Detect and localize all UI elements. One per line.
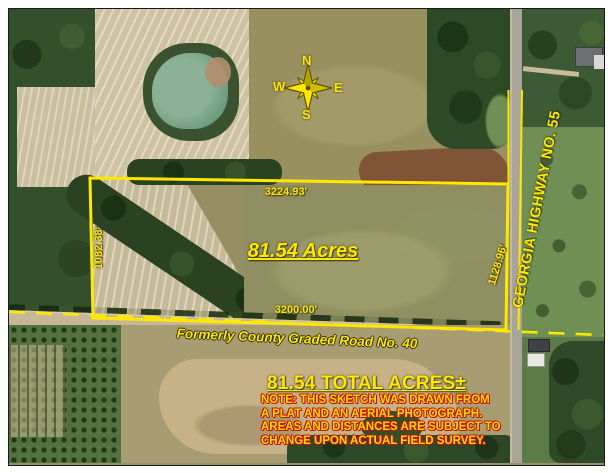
note-line-2: A PLAT AND AN AERIAL PHOTOGRAPH.: [261, 408, 501, 422]
dimension-bottom: 3200.00': [236, 304, 356, 316]
compass-n-label: N: [302, 53, 311, 68]
compass-s-label: S: [302, 107, 311, 122]
parcel-acres-label: 81.54 Acres: [223, 240, 383, 263]
dimension-top: 3224.93': [226, 186, 346, 198]
compass-w-label: W: [273, 79, 285, 94]
dimension-left: 1082.38': [93, 213, 105, 283]
aerial-photo: N S W E 3224.93' 3200.00' 1082.38' 1128.…: [8, 8, 605, 466]
compass-e-label: E: [334, 80, 343, 95]
total-acres-label: 81.54 TOTAL ACRES±: [267, 373, 466, 395]
note-line-4: CHANGE UPON ACTUAL FIELD SURVEY.: [261, 435, 501, 449]
survey-sketch-page: N S W E 3224.93' 3200.00' 1082.38' 1128.…: [0, 0, 613, 473]
survey-note: NOTE: THIS SKETCH WAS DRAWN FROM A PLAT …: [261, 394, 501, 448]
note-line-3: AREAS AND DISTANCES ARE SUBJECT TO: [261, 421, 501, 435]
note-line-1: NOTE: THIS SKETCH WAS DRAWN FROM: [261, 394, 501, 408]
compass-rose-icon: [284, 64, 332, 112]
